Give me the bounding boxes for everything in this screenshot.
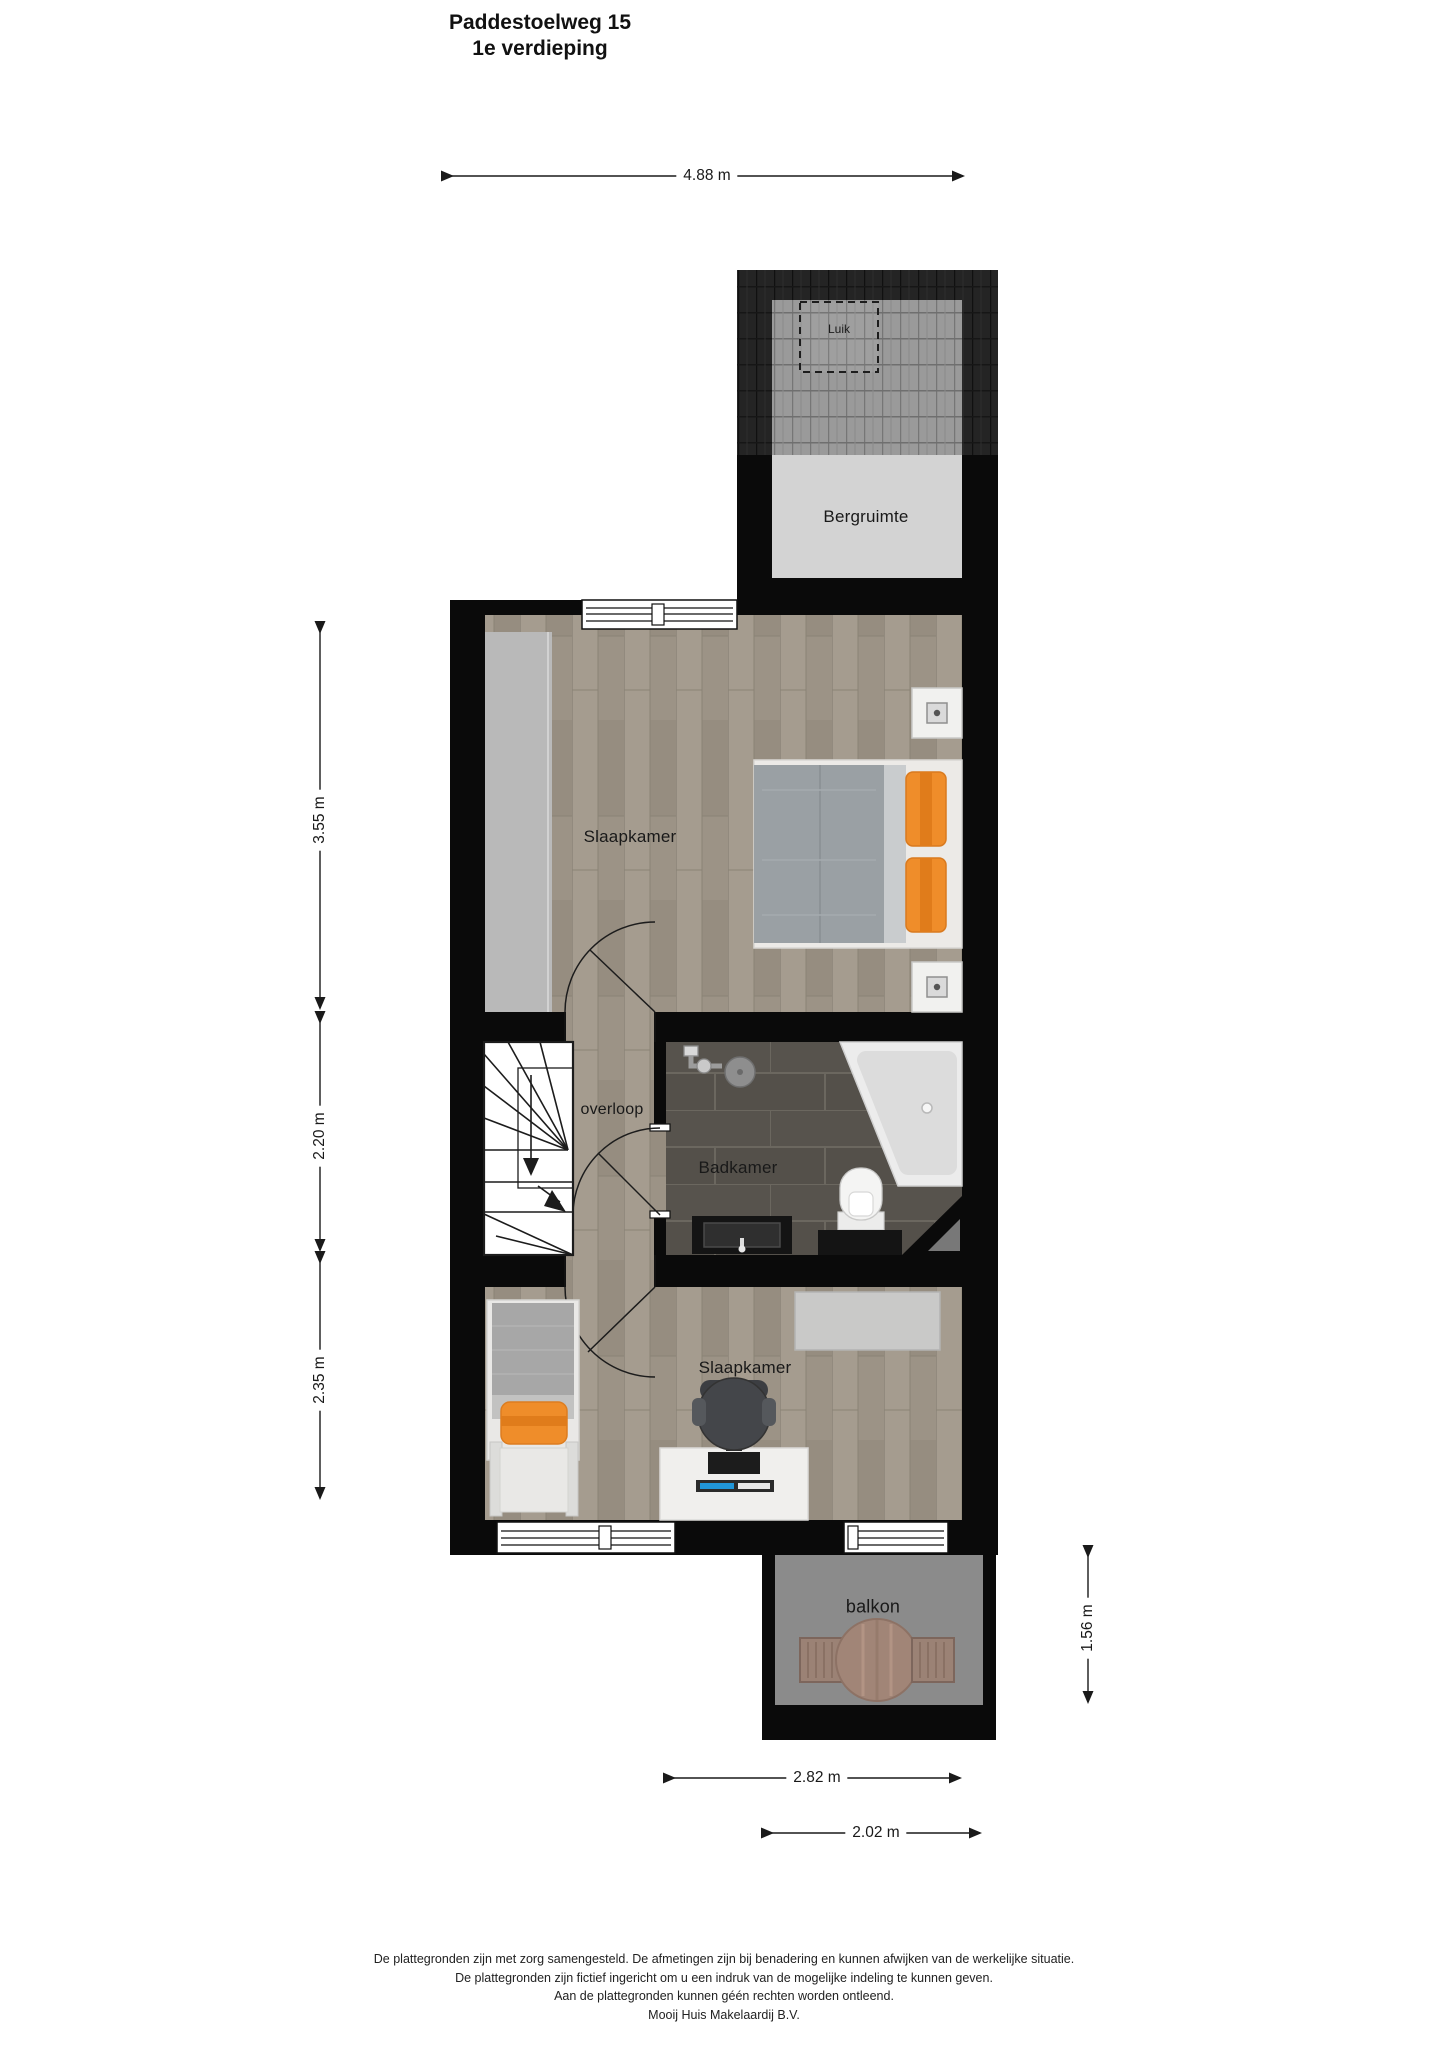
dim-left-bottom: 2.35 m [311, 1349, 329, 1410]
disclaimer-line-3: Aan de plattegronden kunnen géén rechten… [0, 1987, 1448, 2006]
room-label-slaapkamer-2: Slaapkamer [699, 1358, 792, 1378]
room-label-balkon: balkon [846, 1597, 900, 1618]
bergruimte-room [737, 455, 998, 615]
address-title: Paddestoelweg 15 [0, 10, 1080, 36]
room-label-badkamer: Badkamer [698, 1158, 777, 1178]
floorplan-drawing [0, 0, 1448, 2048]
disclaimer: De plattegronden zijn met zorg samengest… [0, 1950, 1448, 2024]
disclaimer-line-2: De plattegronden zijn fictief ingericht … [0, 1969, 1448, 1988]
balcony [762, 1555, 996, 1740]
bed-single [487, 1300, 579, 1516]
plan-title: Paddestoelweg 15 1e verdieping [0, 10, 1080, 62]
window-top [582, 600, 737, 629]
balcony-door-window [844, 1522, 948, 1553]
room-label-luik: Luik [828, 322, 850, 336]
toilet [838, 1168, 884, 1230]
disclaimer-line-4: Mooij Huis Makelaardij B.V. [0, 2006, 1448, 2025]
desk [660, 1444, 808, 1520]
staircase [484, 1042, 573, 1255]
floor-subtitle: 1e verdieping [0, 36, 1080, 62]
room-label-overloop: overloop [581, 1101, 644, 1119]
disclaimer-line-1: De plattegronden zijn met zorg samengest… [0, 1950, 1448, 1969]
bed-double [754, 760, 962, 948]
luik-hatch [800, 302, 878, 372]
dim-bottom-inner: 2.02 m [845, 1824, 906, 1842]
dresser [795, 1292, 940, 1350]
overloop-floor [565, 1012, 666, 1290]
dim-left-middle: 2.20 m [311, 1105, 329, 1166]
room-label-slaapkamer-1: Slaapkamer [584, 827, 677, 847]
floorplan-page: Paddestoelweg 15 1e verdieping Bergruimt… [0, 0, 1448, 2048]
dim-left-top: 3.55 m [311, 789, 329, 850]
slaapkamer1-closet [485, 632, 552, 1012]
roof [737, 270, 998, 455]
dim-right-balcony: 1.56 m [1079, 1597, 1097, 1658]
balcony-chair-right [912, 1638, 954, 1682]
nightstand-top [912, 688, 962, 738]
room-label-bergruimte: Bergruimte [823, 507, 908, 527]
dim-bottom-outer: 2.82 m [786, 1769, 847, 1787]
window-bottom-left [497, 1522, 675, 1553]
dim-top-width: 4.88 m [676, 167, 737, 185]
nightstand-bottom [912, 962, 962, 1012]
